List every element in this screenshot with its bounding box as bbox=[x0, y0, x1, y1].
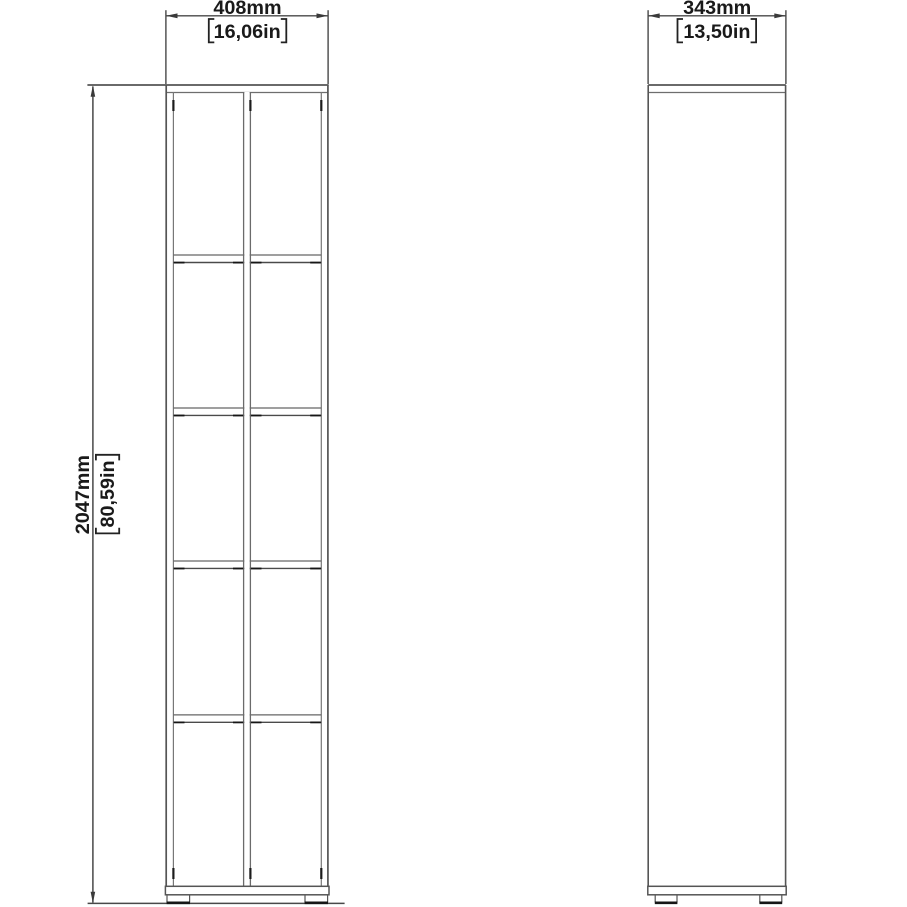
svg-text:2047mm: 2047mm bbox=[72, 455, 94, 534]
svg-text:13,50in: 13,50in bbox=[683, 21, 750, 43]
svg-text:16,06in: 16,06in bbox=[214, 21, 281, 43]
svg-text:80,59in: 80,59in bbox=[97, 460, 119, 527]
